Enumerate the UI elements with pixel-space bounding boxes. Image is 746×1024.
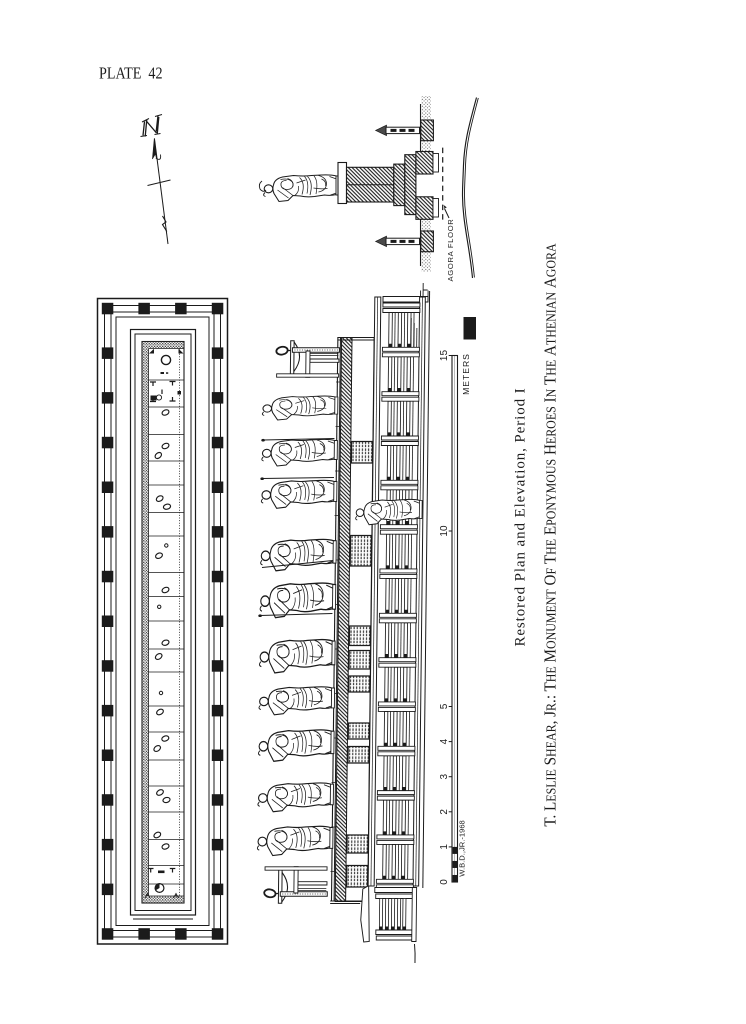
svg-text:PLATE 42: PLATE 42	[99, 64, 163, 83]
svg-text:10: 10	[439, 525, 450, 537]
svg-text:METERS: METERS	[461, 353, 471, 395]
svg-text:4: 4	[439, 738, 450, 744]
svg-text:5: 5	[439, 703, 450, 709]
svg-text:2: 2	[439, 809, 450, 815]
svg-text:W.B.D.,JR.-1968: W.B.D.,JR.-1968	[458, 820, 467, 877]
svg-text:15: 15	[439, 350, 450, 362]
svg-text:T. LESLIE SHEAR, JR.: THE MONU: T. LESLIE SHEAR, JR.: THE MONUMENT OF TH…	[541, 243, 560, 827]
svg-text:AGORA FLOOR: AGORA FLOOR	[446, 219, 455, 282]
svg-text:Restored Plan and Elevation, P: Restored Plan and Elevation, Period I	[513, 387, 529, 646]
svg-text:0: 0	[439, 879, 450, 885]
svg-text:1: 1	[439, 844, 450, 850]
svg-text:3: 3	[439, 773, 450, 779]
